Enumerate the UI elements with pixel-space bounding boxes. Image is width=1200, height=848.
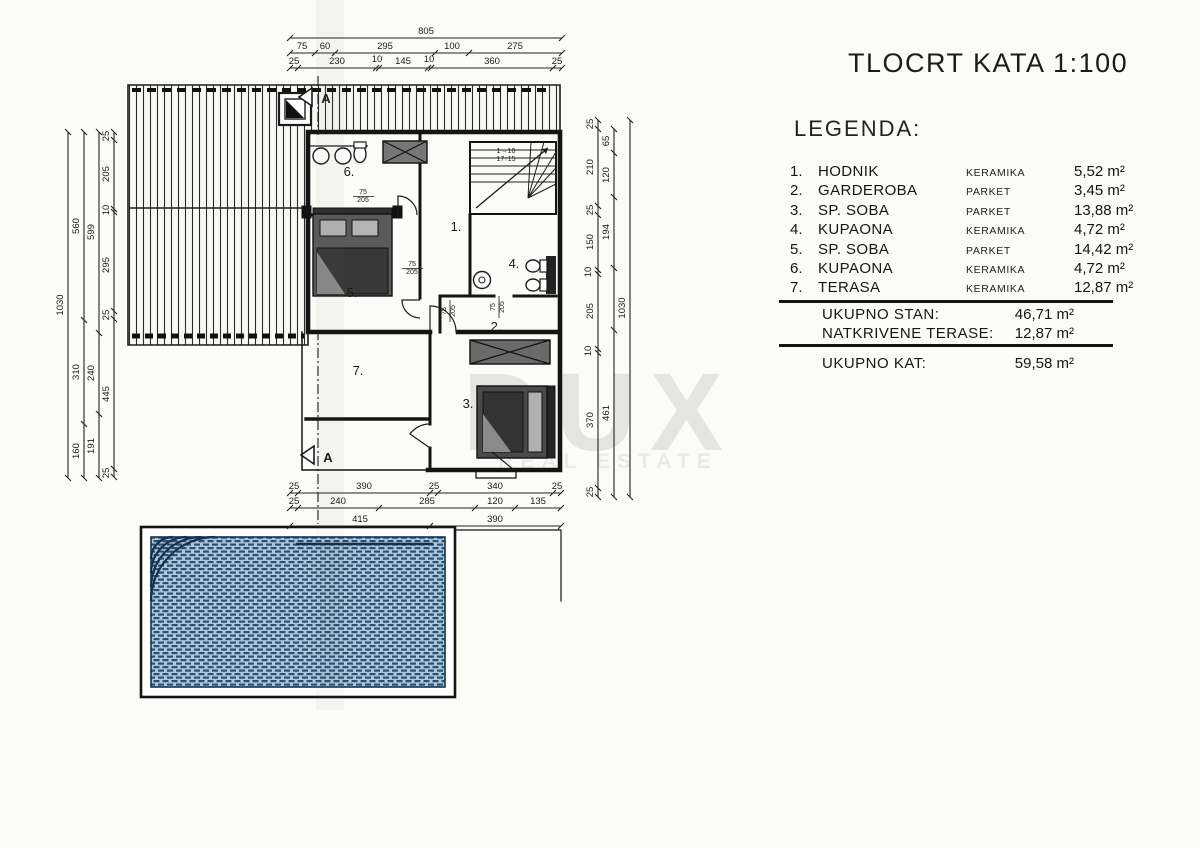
room-name: SP. SOBA (818, 202, 966, 219)
plan-label: 25 (289, 496, 300, 507)
plan-label: 10 (583, 267, 594, 278)
plan-label: 1. (451, 219, 462, 234)
room-name: KUPAONA (818, 260, 966, 277)
room-number: 3. (790, 202, 818, 219)
plan-label: 205 (101, 166, 112, 182)
plan-label: 310 (71, 364, 82, 380)
legend-row: 6.KUPAONAKERAMIKA4,72 m² (790, 260, 1074, 279)
room-area: 4,72 m² (1074, 260, 1125, 277)
plan-label: 194 (601, 224, 612, 240)
plan-label: 340 (487, 481, 503, 492)
totals-block: UKUPNO STAN:46,71 m²NATKRIVENE TERASE:12… (790, 306, 1074, 343)
plan-label: 65 (601, 136, 612, 147)
room-name: KUPAONA (818, 221, 966, 238)
room-name: SP. SOBA (818, 241, 966, 258)
plan-label: 25 (552, 56, 563, 67)
pillow (352, 220, 378, 236)
grand-total-value: 59,58 m² (1015, 355, 1074, 372)
plan-label: 360 (484, 56, 500, 67)
plan-label: 25 (552, 481, 563, 492)
room-material: KERAMIKA (966, 225, 1074, 237)
legend-row: 4.KUPAONAKERAMIKA4,72 m² (790, 221, 1074, 240)
room-number: 4. (790, 221, 818, 238)
closet-room3 (470, 340, 550, 364)
plan-label: 191 (86, 438, 97, 454)
plan-label: 390 (356, 481, 372, 492)
room-number: 2. (790, 182, 818, 199)
legend-row: 1.HODNIKKERAMIKA5,52 m² (790, 163, 1074, 182)
plan-label: 205 (357, 197, 369, 204)
legend-row: 2.GARDEROBAPARKET3,45 m² (790, 182, 1074, 201)
plan-label: 25 (585, 487, 596, 498)
pillow (528, 392, 542, 452)
plan-label: 10 (424, 54, 435, 65)
plan-label: 1030 (617, 297, 628, 318)
plan-label: 145 (395, 56, 411, 67)
plan-label: 25 (585, 119, 596, 130)
plan-label: 275 (507, 41, 523, 52)
plan-label: 415 (352, 514, 368, 525)
section-arrow-bottom (301, 446, 314, 464)
room-material: PARKET (966, 206, 1074, 218)
plan-label: 285 (419, 496, 435, 507)
room-area: 12,87 m² (1074, 279, 1133, 296)
plan-label: 25 (101, 131, 112, 142)
totals-row: NATKRIVENE TERASE:12,87 m² (790, 325, 1074, 344)
nightstand (302, 206, 311, 218)
plan-label: 4. (509, 256, 520, 271)
door-swing (402, 300, 420, 318)
plan-label: 135 (530, 496, 546, 507)
total-label: NATKRIVENE TERASE: (790, 325, 1015, 342)
plan-label: 295 (101, 257, 112, 273)
total-value: 46,71 m² (1015, 306, 1074, 323)
plan-label: 10 (101, 205, 112, 216)
bed-room3 (477, 386, 555, 458)
page-title: TLOCRT KATA 1:100 (848, 48, 1128, 79)
plan-label: 805 (418, 26, 434, 37)
plan-label: 240 (86, 365, 97, 381)
plan-label: 10 (372, 54, 383, 65)
room-name: TERASA (818, 279, 966, 296)
divider-line (779, 344, 1113, 347)
plan-label: 205 (499, 301, 506, 313)
legend-heading: LEGENDA: (794, 116, 921, 142)
plan-label: 5. (347, 285, 358, 300)
door-swing (410, 424, 430, 448)
patio-edge (454, 530, 561, 601)
plan-label: 205 (406, 269, 418, 276)
legend-row: 3.SP. SOBAPARKET13,88 m² (790, 202, 1074, 221)
floor-plan-drawing: DUX REAL ESTATE (0, 0, 780, 848)
room-area: 3,45 m² (1074, 182, 1125, 199)
plan-label: 210 (585, 159, 596, 175)
plan-label: 17↑15 (496, 156, 515, 163)
plan-label: 370 (585, 412, 596, 428)
room-number: 5. (790, 241, 818, 258)
plan-label: 7. (353, 363, 364, 378)
plan-label: 1→10 (497, 148, 516, 155)
total-label: UKUPNO STAN: (790, 306, 1015, 323)
pool (141, 527, 455, 697)
closet-top (383, 141, 427, 163)
totals-row: UKUPNO STAN:46,71 m² (790, 306, 1074, 325)
total-value: 12,87 m² (1015, 325, 1074, 342)
plan-label: 295 (377, 41, 393, 52)
plan-label: 6. (344, 164, 355, 179)
room-number: 7. (790, 279, 818, 296)
grand-total-label: UKUPNO KAT: (790, 355, 1015, 372)
room-number: 1. (790, 163, 818, 180)
pool-water (151, 537, 445, 687)
plan-label: 1030 (55, 294, 66, 315)
plan-label: 75 (441, 307, 448, 315)
plan-label: 461 (601, 405, 612, 421)
room-name: HODNIK (818, 163, 966, 180)
room-area: 13,88 m² (1074, 202, 1133, 219)
plan-label: 560 (71, 218, 82, 234)
legend-row: 7.TERASAKERAMIKA12,87 m² (790, 279, 1074, 298)
plan-label: 100 (444, 41, 460, 52)
plan-label: 120 (601, 167, 612, 183)
divider-line (779, 300, 1113, 303)
scanned-floor-plan-page: DUX REAL ESTATE (0, 0, 1200, 848)
plan-label: 25 (289, 56, 300, 67)
plan-label: 205 (585, 303, 596, 319)
room-area: 14,42 m² (1074, 241, 1133, 258)
bidet-icon (526, 279, 540, 291)
room-material: KERAMIKA (966, 264, 1074, 276)
scan-fold-artifact (316, 0, 344, 710)
plan-label: 25 (101, 310, 112, 321)
room-material: KERAMIKA (966, 167, 1074, 179)
plan-label: 75 (297, 41, 308, 52)
room-area: 4,72 m² (1074, 221, 1125, 238)
room-material: PARKET (966, 245, 1074, 257)
plan-label: 10 (583, 346, 594, 357)
plan-label: 75 (408, 261, 416, 268)
room-area: 5,52 m² (1074, 163, 1125, 180)
plan-label: 25 (429, 481, 440, 492)
plan-label: 25 (289, 481, 300, 492)
plan-label: 3. (463, 396, 474, 411)
plan-label: 75 (359, 189, 367, 196)
toilet-icon (526, 260, 540, 272)
room-name: GARDEROBA (818, 182, 966, 199)
plan-label: 75 (490, 303, 497, 311)
plan-label: 160 (71, 443, 82, 459)
plan-label: 599 (86, 224, 97, 240)
plan-label: 390 (487, 514, 503, 525)
plan-label: 25 (101, 468, 112, 479)
plan-label: 2. (491, 319, 502, 334)
plan-label: 25 (585, 205, 596, 216)
plan-label: 445 (101, 386, 112, 402)
legend-row: 5.SP. SOBAPARKET14,42 m² (790, 241, 1074, 260)
legend-table: 1.HODNIKKERAMIKA5,52 m²2.GARDEROBAPARKET… (790, 163, 1074, 299)
plan-label: 205 (450, 305, 457, 317)
plan-label: 150 (585, 234, 596, 250)
room-number: 6. (790, 260, 818, 277)
grand-total-row: UKUPNO KAT: 59,58 m² (790, 355, 1074, 374)
room-material: PARKET (966, 186, 1074, 198)
room-material: KERAMIKA (966, 283, 1074, 295)
plan-label: 120 (487, 496, 503, 507)
